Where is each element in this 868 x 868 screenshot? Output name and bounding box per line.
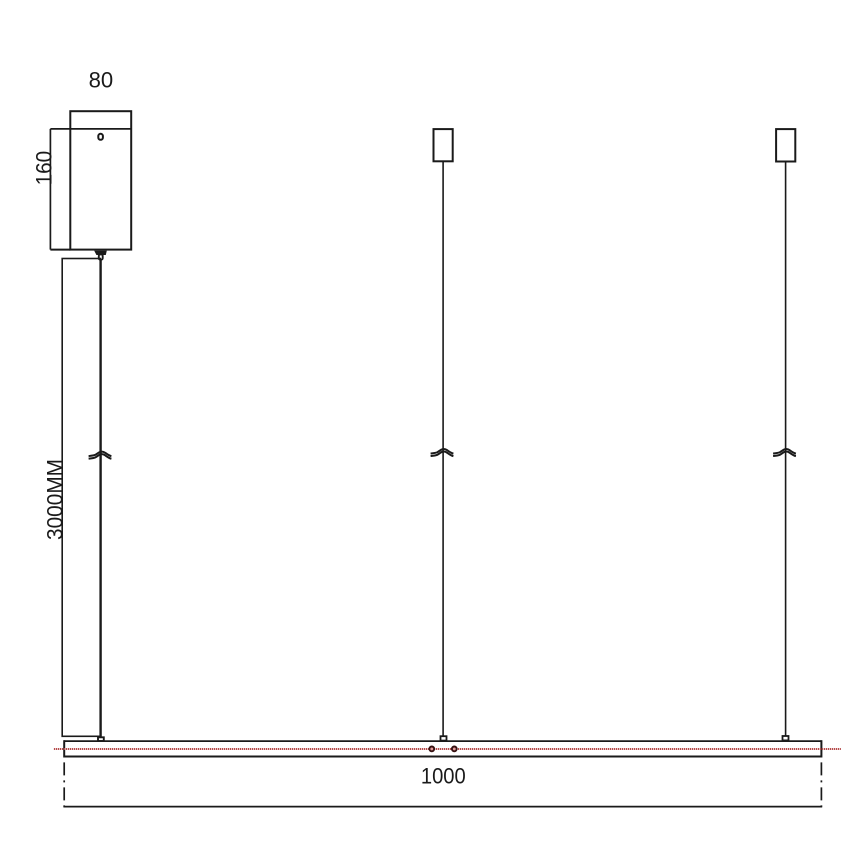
svg-text:1000: 1000 bbox=[421, 764, 466, 789]
svg-text:160: 160 bbox=[31, 151, 56, 186]
svg-text:3000MM: 3000MM bbox=[42, 459, 67, 540]
svg-text:80: 80 bbox=[89, 68, 114, 93]
